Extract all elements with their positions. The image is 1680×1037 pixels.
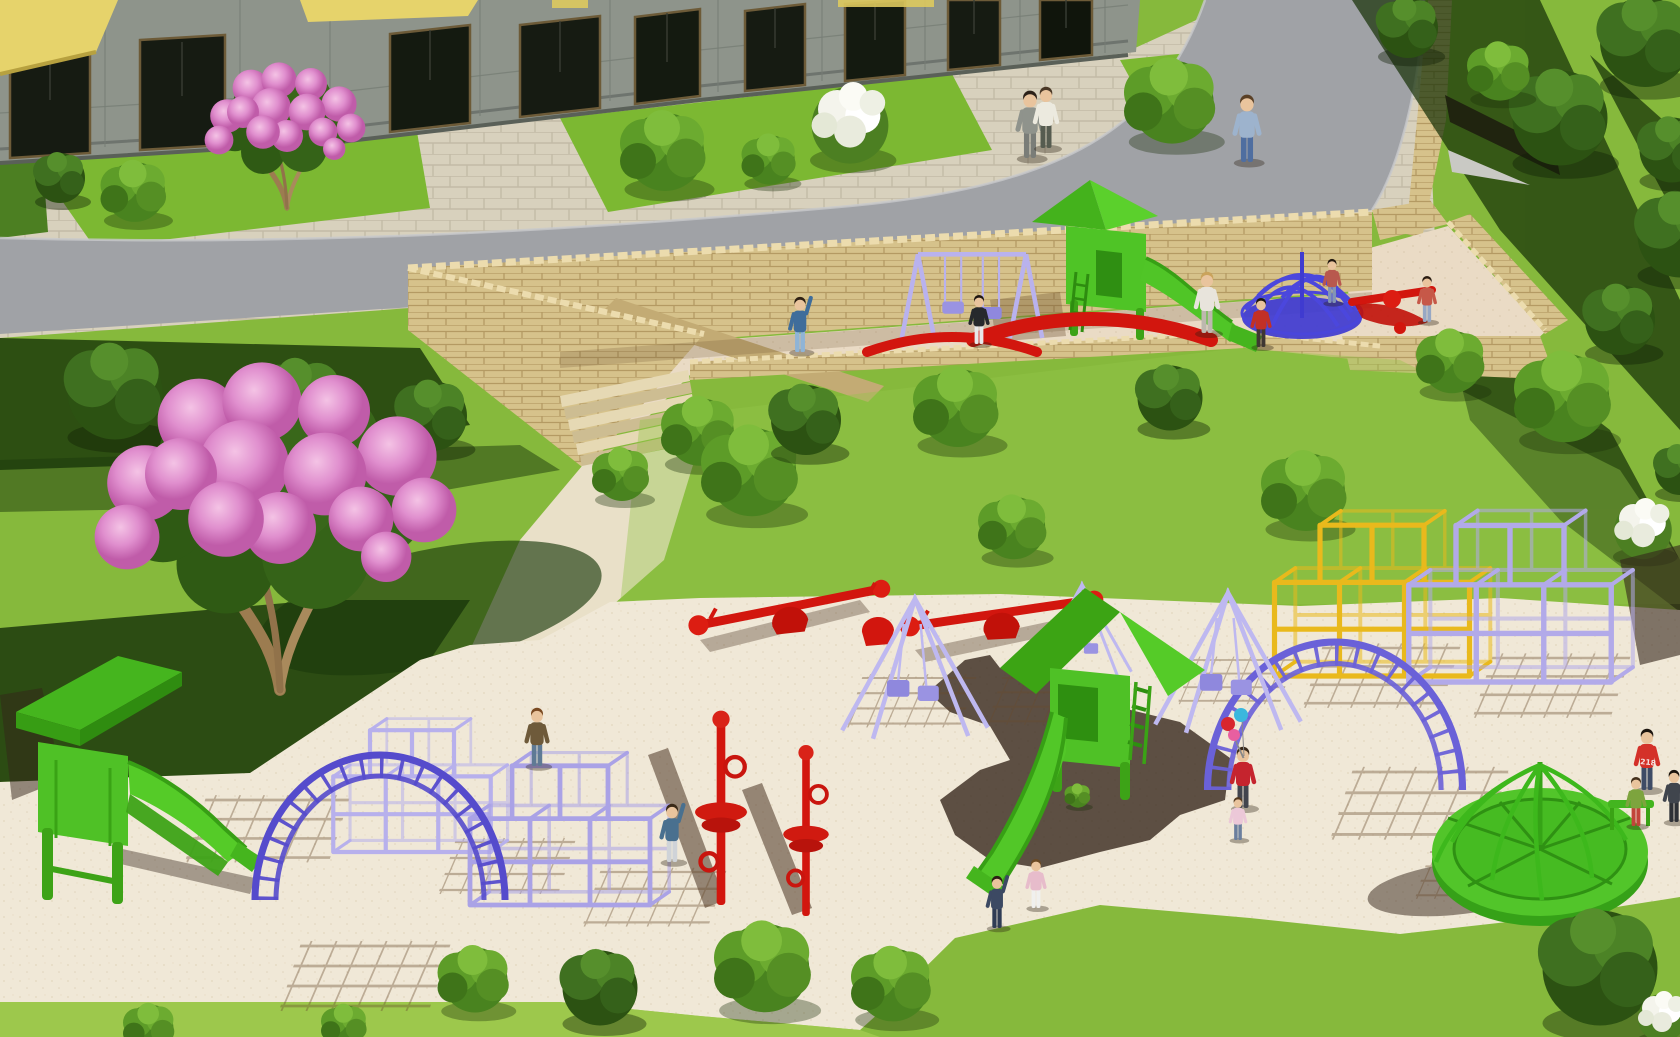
bushdark [1637,116,1680,191]
playground-rendering: 218 [0,0,1680,1037]
rendering-canvas: 218 [0,0,1680,1037]
bushdark [1596,0,1680,100]
hoodie-print-218: 218 [1640,757,1657,768]
